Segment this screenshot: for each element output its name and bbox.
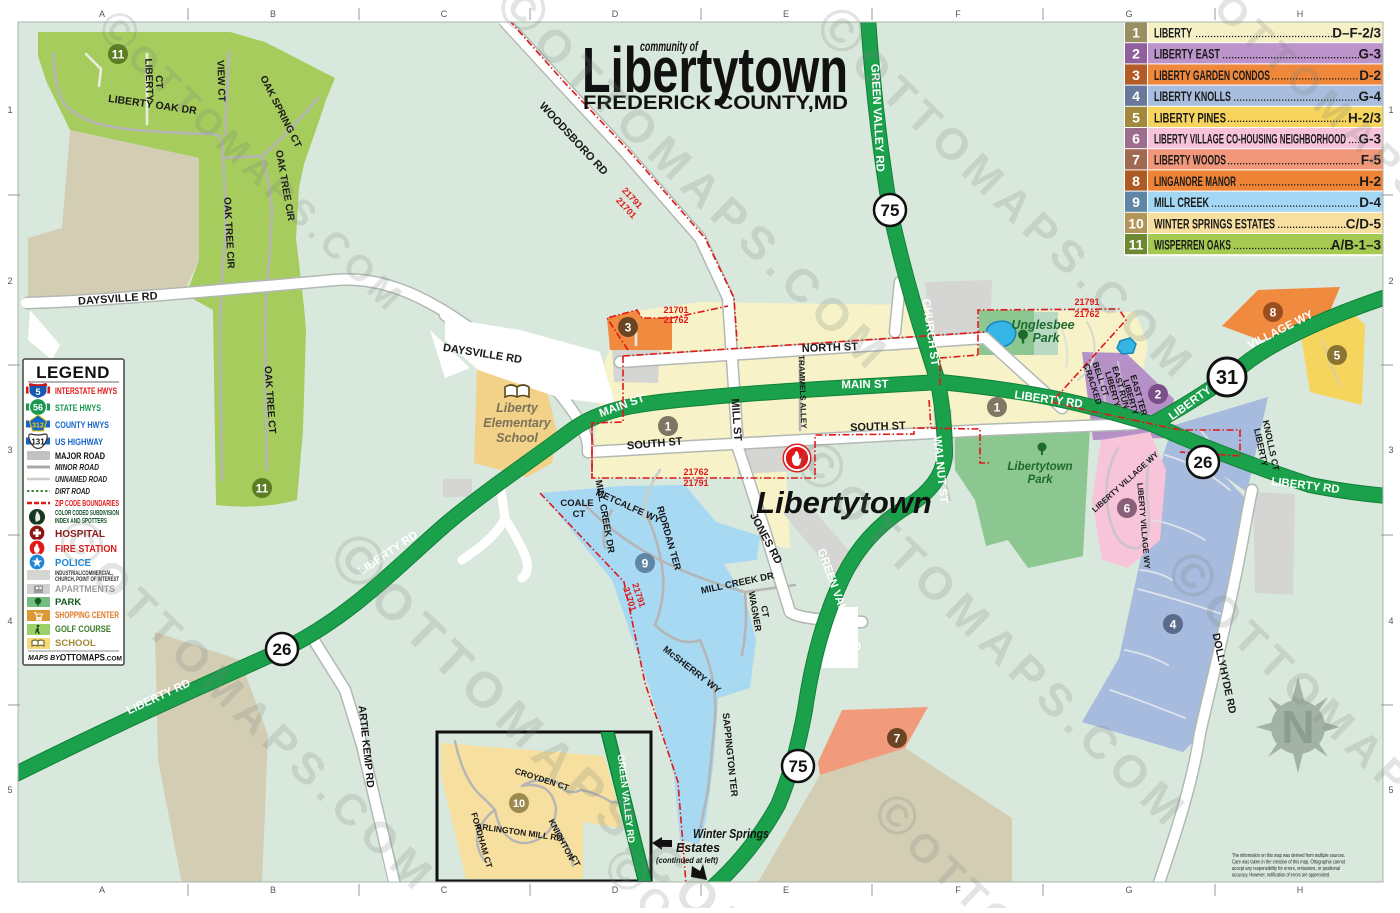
svg-text:B: B bbox=[270, 9, 276, 19]
svg-text:accept any responsibility for: accept any responsibility for errors, om… bbox=[1232, 866, 1340, 872]
svg-text:4: 4 bbox=[1388, 616, 1393, 626]
svg-text:1: 1 bbox=[665, 420, 672, 434]
svg-text:10: 10 bbox=[1128, 215, 1144, 231]
svg-text:Park: Park bbox=[1028, 474, 1054, 486]
svg-text:3: 3 bbox=[625, 321, 632, 335]
svg-text:School: School bbox=[496, 431, 538, 445]
svg-text:LIBERTY WOODS: LIBERTY WOODS bbox=[1154, 153, 1226, 168]
svg-text:STATE HWYS: STATE HWYS bbox=[55, 403, 101, 413]
svg-text:4: 4 bbox=[1132, 88, 1140, 104]
svg-text:LIBERTY GARDEN CONDOS: LIBERTY GARDEN CONDOS bbox=[1154, 68, 1270, 83]
svg-text:SCHOOL: SCHOOL bbox=[55, 638, 96, 649]
svg-text:INTERSTATE HWYS: INTERSTATE HWYS bbox=[55, 386, 117, 396]
svg-text:9: 9 bbox=[642, 557, 649, 571]
svg-text:MAPS BY:: MAPS BY: bbox=[28, 655, 62, 662]
svg-text:D–F-2/3: D–F-2/3 bbox=[1332, 26, 1381, 41]
svg-text:7: 7 bbox=[894, 732, 901, 746]
svg-text:MILL CREEK: MILL CREEK bbox=[1154, 195, 1209, 210]
svg-text:SOUTH ST: SOUTH ST bbox=[850, 420, 906, 434]
svg-text:C/D-5: C/D-5 bbox=[1346, 216, 1382, 231]
svg-text:UNNAMED ROAD: UNNAMED ROAD bbox=[55, 475, 107, 484]
svg-text:5: 5 bbox=[1334, 349, 1341, 363]
svg-text:2: 2 bbox=[7, 276, 12, 286]
svg-text:C: C bbox=[441, 9, 448, 19]
svg-text:.COM: .COM bbox=[105, 656, 122, 663]
svg-text:OTTOMAPS: OTTOMAPS bbox=[60, 653, 105, 663]
svg-text:US HIGHWAY: US HIGHWAY bbox=[55, 437, 103, 447]
svg-text:21762: 21762 bbox=[663, 315, 688, 325]
svg-text:H: H bbox=[1297, 885, 1304, 895]
svg-text:75: 75 bbox=[789, 757, 808, 776]
svg-text:8: 8 bbox=[1270, 306, 1277, 320]
svg-text:DIRT ROAD: DIRT ROAD bbox=[55, 487, 90, 496]
svg-text:Care was taken in the creation: Care was taken in the creation of this m… bbox=[1232, 860, 1345, 866]
svg-text:WISPERREN OAKS: WISPERREN OAKS bbox=[1154, 238, 1231, 253]
svg-text:MINOR ROAD: MINOR ROAD bbox=[55, 462, 99, 472]
svg-text:3: 3 bbox=[7, 445, 12, 455]
svg-text:LIBERTY VILLAGE CO-HOUSING NEI: LIBERTY VILLAGE CO-HOUSING NEIGHBORHOOD bbox=[1154, 132, 1346, 147]
svg-text:COUNTY HWYS: COUNTY HWYS bbox=[55, 420, 109, 430]
svg-text:WINTER SPRINGS ESTATES: WINTER SPRINGS ESTATES bbox=[1154, 216, 1275, 231]
svg-text:7: 7 bbox=[1132, 152, 1140, 168]
svg-text:G: G bbox=[1125, 885, 1132, 895]
svg-text:COALE: COALE bbox=[560, 498, 593, 509]
svg-text:A: A bbox=[99, 9, 105, 19]
svg-text:LIBERTY PINES: LIBERTY PINES bbox=[1154, 110, 1226, 125]
svg-text:75: 75 bbox=[881, 201, 900, 220]
svg-text:The information on this map wa: The information on this map was derived … bbox=[1232, 853, 1345, 859]
svg-text:21762: 21762 bbox=[683, 467, 708, 477]
svg-text:G-4: G-4 bbox=[1358, 89, 1381, 104]
svg-text:LEGEND: LEGEND bbox=[36, 363, 110, 382]
svg-text:2: 2 bbox=[1132, 46, 1140, 62]
svg-text:H: H bbox=[1297, 9, 1304, 19]
svg-text:VIEW CT: VIEW CT bbox=[214, 60, 226, 102]
svg-text:Liberty: Liberty bbox=[496, 401, 539, 415]
svg-text:GOLF COURSE: GOLF COURSE bbox=[55, 624, 111, 635]
svg-text:CT: CT bbox=[759, 605, 771, 619]
svg-text:1: 1 bbox=[994, 401, 1001, 415]
svg-text:Elementary: Elementary bbox=[483, 416, 551, 430]
svg-text:Park: Park bbox=[1032, 331, 1060, 345]
svg-text:MAJOR ROAD: MAJOR ROAD bbox=[55, 451, 105, 461]
svg-text:4: 4 bbox=[7, 616, 12, 626]
svg-text:C: C bbox=[441, 885, 448, 895]
svg-text:3: 3 bbox=[1132, 67, 1140, 83]
svg-text:Libertytown: Libertytown bbox=[1007, 461, 1072, 473]
svg-text:F: F bbox=[955, 9, 961, 19]
svg-text:1: 1 bbox=[7, 105, 12, 115]
svg-text:E: E bbox=[783, 9, 789, 19]
svg-text:D-4: D-4 bbox=[1359, 195, 1381, 210]
svg-text:LIBERTY KNOLLS: LIBERTY KNOLLS bbox=[1154, 89, 1231, 104]
svg-text:4: 4 bbox=[1170, 618, 1177, 632]
svg-text:SHOPPING CENTER: SHOPPING CENTER bbox=[55, 610, 119, 621]
svg-text:11: 11 bbox=[256, 482, 269, 496]
svg-text:accuracy. However, notificatio: accuracy. However, notification of error… bbox=[1232, 873, 1330, 879]
svg-text:A/B-1–3: A/B-1–3 bbox=[1331, 238, 1382, 253]
svg-text:A: A bbox=[99, 885, 105, 895]
svg-text:21701: 21701 bbox=[663, 305, 688, 315]
svg-text:G: G bbox=[1125, 9, 1132, 19]
svg-text:B: B bbox=[270, 885, 276, 895]
svg-text:2: 2 bbox=[1155, 388, 1162, 402]
svg-text:1: 1 bbox=[1132, 25, 1140, 41]
svg-text:10: 10 bbox=[513, 798, 525, 810]
svg-text:E: E bbox=[783, 885, 789, 895]
svg-text:31: 31 bbox=[1216, 367, 1238, 389]
svg-text:G-3: G-3 bbox=[1358, 47, 1381, 62]
svg-text:Unglesbee: Unglesbee bbox=[1011, 318, 1074, 332]
svg-text:131: 131 bbox=[31, 438, 45, 447]
svg-text:6: 6 bbox=[1124, 502, 1131, 516]
svg-text:3: 3 bbox=[1388, 445, 1393, 455]
svg-text:1: 1 bbox=[1388, 105, 1393, 115]
svg-text:26: 26 bbox=[1194, 453, 1213, 472]
svg-text:LIBERTY EAST: LIBERTY EAST bbox=[1154, 47, 1221, 62]
svg-text:D: D bbox=[612, 9, 619, 19]
svg-text:5: 5 bbox=[7, 785, 12, 795]
svg-text:PARK: PARK bbox=[55, 597, 81, 608]
svg-text:11: 11 bbox=[1129, 237, 1144, 253]
svg-text:56: 56 bbox=[33, 403, 43, 413]
svg-text:Winter Springs: Winter Springs bbox=[693, 827, 769, 841]
svg-text:2: 2 bbox=[1388, 276, 1393, 286]
svg-text:D-2: D-2 bbox=[1359, 68, 1381, 83]
svg-text:6: 6 bbox=[1132, 131, 1140, 147]
svg-text:9: 9 bbox=[1132, 194, 1140, 210]
svg-text:8: 8 bbox=[1132, 173, 1140, 189]
svg-text:26: 26 bbox=[273, 640, 292, 659]
svg-text:21791: 21791 bbox=[683, 478, 708, 488]
svg-text:5: 5 bbox=[35, 387, 40, 397]
svg-text:LINGANORE MANOR: LINGANORE MANOR bbox=[1154, 174, 1236, 189]
svg-text:5: 5 bbox=[1132, 109, 1140, 125]
svg-text:LIBERTY: LIBERTY bbox=[1154, 26, 1192, 41]
svg-text:312: 312 bbox=[32, 423, 44, 430]
svg-text:CT: CT bbox=[573, 509, 586, 520]
